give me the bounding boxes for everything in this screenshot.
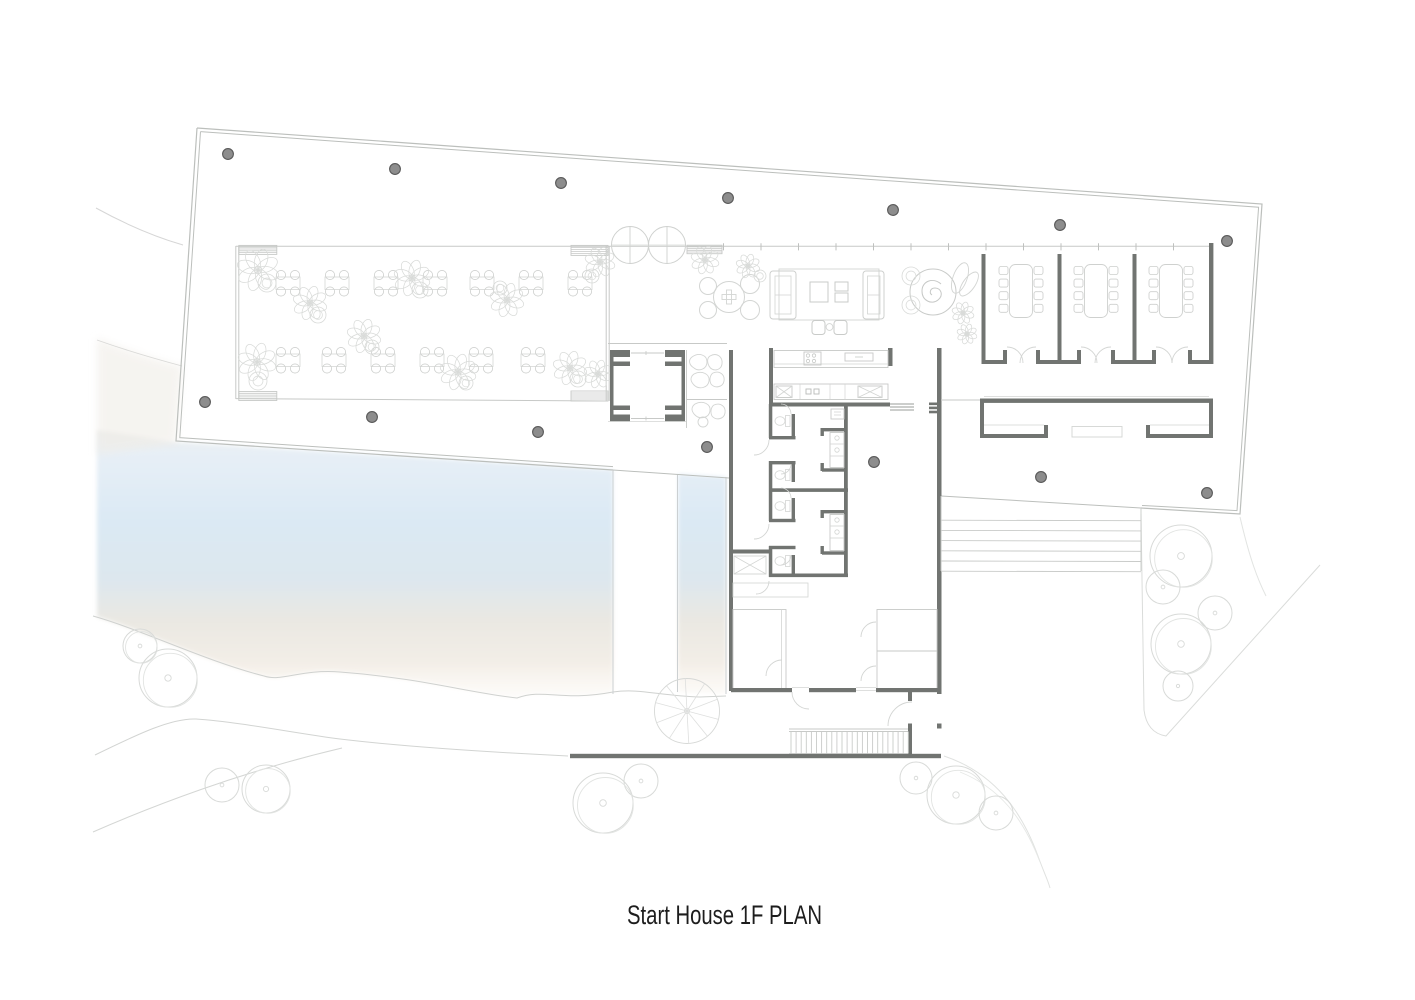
svg-text:Start House 1F PLAN: Start House 1F PLAN — [627, 900, 822, 930]
